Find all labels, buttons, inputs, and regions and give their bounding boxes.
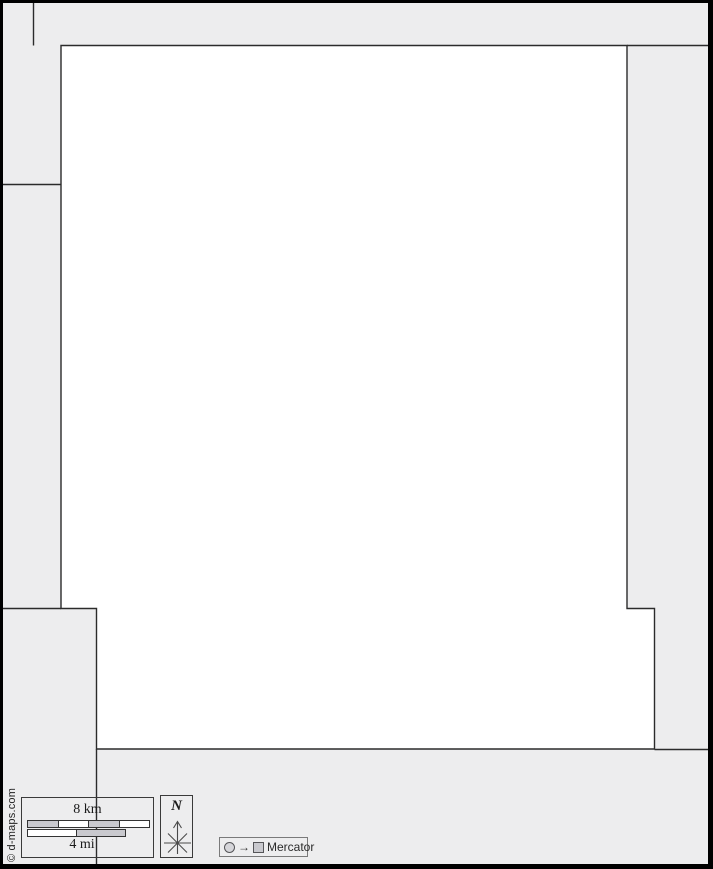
north-indicator-box: N bbox=[160, 795, 193, 858]
frame-right bbox=[708, 0, 713, 869]
main-region-shape bbox=[61, 46, 655, 750]
projection-label: Mercator bbox=[267, 840, 314, 854]
scale-mi-bar bbox=[27, 829, 126, 837]
projection-box: → Mercator bbox=[219, 837, 308, 857]
map-outline-svg bbox=[0, 0, 713, 869]
scale-bar-box: 8 km 4 mi bbox=[21, 797, 154, 858]
projected-square-icon bbox=[253, 842, 264, 853]
copyright-text: © d-maps.com bbox=[6, 788, 18, 862]
north-arrow-icon bbox=[161, 816, 194, 857]
frame-left bbox=[0, 0, 3, 869]
scale-km-segment bbox=[119, 821, 150, 827]
frame-bottom bbox=[0, 864, 713, 869]
map-canvas: 8 km 4 mi N → Mercator © d-maps.com bbox=[0, 0, 713, 869]
globe-circle-icon bbox=[224, 842, 235, 853]
scale-km-segment bbox=[58, 821, 89, 827]
scale-km-segment bbox=[88, 821, 119, 827]
projection-arrow-icon: → bbox=[238, 841, 250, 853]
frame-top bbox=[0, 0, 713, 3]
scale-mi-segment bbox=[28, 830, 76, 836]
scale-km-bar bbox=[27, 820, 150, 828]
scale-mi-label: 4 mi bbox=[22, 837, 142, 853]
scale-km-label: 8 km bbox=[22, 802, 153, 818]
north-label: N bbox=[161, 798, 192, 815]
scale-mi-segment bbox=[76, 830, 125, 836]
scale-km-segment bbox=[28, 821, 58, 827]
